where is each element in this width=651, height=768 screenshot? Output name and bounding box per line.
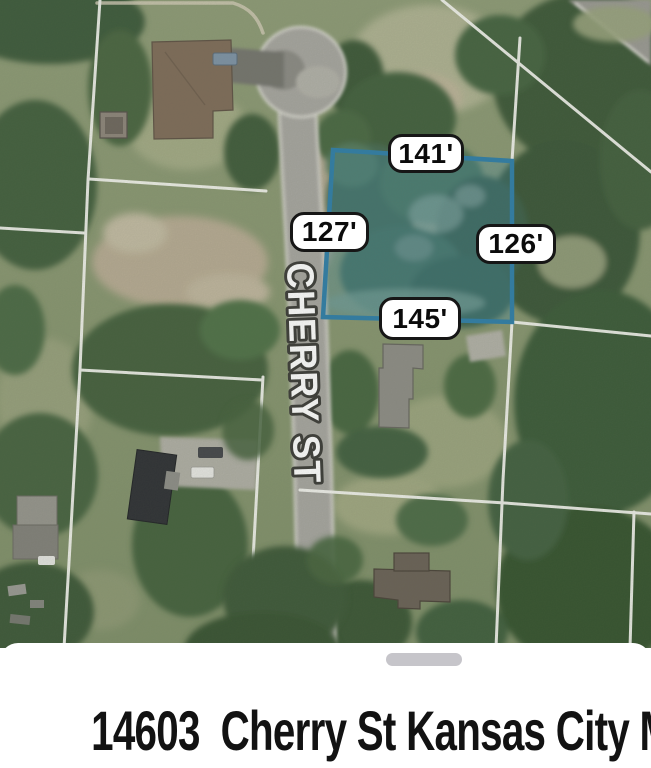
sheet-drag-handle[interactable] <box>386 653 462 666</box>
dimension-label-left: 127' <box>290 212 369 252</box>
property-listing-photo-viewer: CHERRY ST 141' 127' 126' 145' 14603 Cher… <box>0 0 651 768</box>
dimension-label-bottom: 145' <box>379 297 461 340</box>
address-title: 14603 Cherry St Kansas City MO <box>91 699 560 763</box>
dimension-label-top: 141' <box>388 134 464 173</box>
photo-grain-overlay <box>0 0 651 648</box>
aerial-imagery[interactable]: CHERRY ST <box>0 0 651 648</box>
dimension-label-right: 126' <box>476 224 556 264</box>
bottom-sheet: 14603 Cherry St Kansas City MO <box>0 643 651 768</box>
